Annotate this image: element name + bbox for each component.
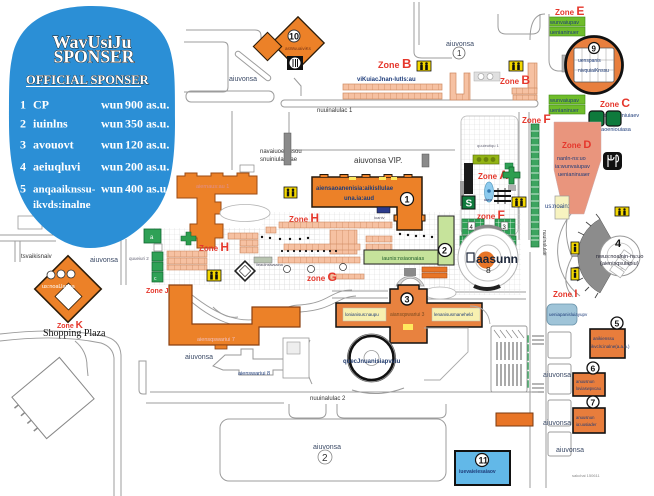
svg-text:navaiuoenissou: navaiuoenissou bbox=[260, 149, 302, 155]
svg-text:wun: wun bbox=[101, 117, 123, 131]
svg-text:400 as.u.: 400 as.u. bbox=[125, 182, 169, 196]
svg-text:8: 8 bbox=[486, 265, 491, 275]
svg-text:3: 3 bbox=[20, 138, 26, 152]
svg-text:1: 1 bbox=[20, 98, 26, 112]
svg-text:aasunn: aasunn bbox=[476, 252, 518, 266]
svg-text:2: 2 bbox=[20, 117, 26, 131]
svg-text:200 as.u.: 200 as.u. bbox=[125, 160, 169, 174]
svg-text:CP: CP bbox=[33, 98, 49, 112]
svg-text:wun: wun bbox=[101, 160, 123, 174]
svg-text:2: 2 bbox=[322, 453, 328, 464]
svg-text:wun: wun bbox=[101, 138, 123, 152]
svg-text:tsvaikisnaiv: tsvaikisnaiv bbox=[21, 254, 52, 260]
svg-text:snuiniulaanae: snuiniulaanae bbox=[260, 157, 298, 163]
svg-text:2: 2 bbox=[442, 246, 447, 256]
svg-text:ikvds:inalne: ikvds:inalne bbox=[33, 199, 91, 211]
svg-text:asWuuaiviKs: asWuuaiviKs bbox=[285, 46, 312, 51]
svg-text:nuuinalulae: nuuinalulae bbox=[541, 230, 547, 256]
svg-text:Zone J: Zone J bbox=[146, 288, 169, 295]
svg-text:aiernaus:au 1: aiernaus:au 1 bbox=[196, 184, 229, 190]
svg-text:aiansqswariui 3: aiansqswariui 3 bbox=[390, 312, 425, 318]
svg-text:nivquiaiKnssu: nivquiaiKnssu bbox=[578, 68, 609, 74]
svg-text:ia:wunvaiupav: ia:wunvaiupav bbox=[555, 164, 590, 170]
svg-text:iuevaieiesaiaov: iuevaieiesaiaov bbox=[459, 469, 496, 475]
svg-text:6: 6 bbox=[591, 364, 596, 374]
svg-text:350 as.u.: 350 as.u. bbox=[125, 117, 169, 131]
svg-text:nuuinalulac 1: nuuinalulac 1 bbox=[317, 108, 353, 114]
svg-text:aiensqswariui 7: aiensqswariui 7 bbox=[197, 337, 235, 343]
svg-text:us:noain:: us:noain: bbox=[545, 204, 570, 210]
svg-text:1: 1 bbox=[457, 49, 462, 58]
svg-text:una.ia:aud: una.ia:aud bbox=[344, 196, 374, 202]
svg-text:uenspanis: uenspanis bbox=[578, 58, 601, 64]
svg-text:us:noaUanna: us:noaUanna bbox=[42, 284, 76, 290]
svg-text:aiuvonsa: aiuvonsa bbox=[90, 257, 118, 264]
svg-text:aiuvonsa VIP.: aiuvonsa VIP. bbox=[354, 156, 402, 165]
svg-text:sakchai 150611: sakchai 150611 bbox=[572, 473, 601, 478]
svg-text:10: 10 bbox=[289, 32, 299, 42]
svg-text:aiuvonsa: aiuvonsa bbox=[229, 76, 257, 83]
svg-text:4: 4 bbox=[615, 238, 622, 250]
svg-text:5: 5 bbox=[615, 319, 620, 329]
svg-text:nwus:noalnin-ns:uo: nwus:noalnin-ns:uo bbox=[596, 254, 643, 260]
svg-text:anuusnun: anuusnun bbox=[576, 415, 595, 420]
svg-text:aeiuqluvi: aeiuqluvi bbox=[33, 160, 81, 174]
svg-text:uenianinuaer: uenianinuaer bbox=[558, 172, 590, 178]
svg-text:aiensaoanenisia:aikisllulae: aiensaoanenisia:aikisllulae bbox=[316, 186, 394, 192]
svg-text:aiuvonsa: aiuvonsa bbox=[185, 354, 213, 361]
svg-text:ia:uusiader: ia:uusiader bbox=[576, 422, 597, 427]
svg-text:120 as.u.: 120 as.u. bbox=[125, 138, 169, 152]
svg-text:11: 11 bbox=[479, 456, 489, 466]
svg-text:aiuvonsa: aiuvonsa bbox=[543, 372, 571, 379]
svg-text:4: 4 bbox=[20, 160, 26, 174]
svg-text:uenianinuer: uenianinuer bbox=[550, 108, 579, 114]
svg-text:ikvcls:inalne(a.a.n.): ikvcls:inalne(a.a.n.) bbox=[591, 344, 630, 349]
svg-text:anuusnun: anuusnun bbox=[576, 379, 595, 384]
svg-text:lenanisusmaneheld: lenanisusmaneheld bbox=[434, 312, 473, 317]
svg-text:ueniapanisluiayupv: ueniapanisluiayupv bbox=[549, 312, 588, 317]
svg-text:ioaniv: ioaniv bbox=[374, 215, 384, 220]
svg-text:(aienisqsuiapiu): (aienisqsuiapiu) bbox=[600, 261, 639, 267]
svg-text:SPONSER: SPONSER bbox=[54, 47, 135, 67]
svg-text:3: 3 bbox=[405, 295, 410, 305]
svg-text:uenianinuer: uenianinuer bbox=[550, 30, 579, 36]
svg-text:aiuvonsa: aiuvonsa bbox=[543, 420, 571, 427]
svg-text:Zone D: Zone D bbox=[562, 139, 591, 151]
svg-text:quecJnuanisiapvviu: quecJnuanisiapvviu bbox=[343, 359, 401, 365]
svg-text:quueiuri 2: quueiuri 2 bbox=[129, 256, 149, 261]
svg-text:anqaaiknssu-: anqaaiknssu- bbox=[33, 184, 96, 196]
svg-text:iaunis:nsiaonaias: iaunis:nsiaonaias bbox=[382, 256, 424, 262]
svg-text:S: S bbox=[466, 199, 473, 210]
svg-text:5: 5 bbox=[20, 182, 26, 196]
svg-text:uiwu: uiwu bbox=[484, 198, 492, 202]
svg-text:aienswariui 8: aienswariui 8 bbox=[238, 371, 270, 377]
svg-text:avouovt: avouovt bbox=[33, 138, 74, 152]
svg-text:aiuvonsa: aiuvonsa bbox=[556, 447, 584, 454]
svg-text:nanln-ns:uo: nanln-ns:uo bbox=[557, 156, 586, 162]
svg-text:9: 9 bbox=[592, 45, 597, 54]
svg-text:wunvaiupav: wunvaiupav bbox=[549, 20, 579, 26]
svg-text:lonianisus:naupu: lonianisus:naupu bbox=[345, 312, 379, 317]
svg-text:viKuiacJnan-lutls:au: viKuiacJnan-lutls:au bbox=[357, 77, 416, 83]
svg-text:anikienssu: anikienssu bbox=[593, 336, 615, 341]
svg-text:iuinlns: iuinlns bbox=[33, 117, 68, 131]
svg-text:900 as.u.: 900 as.u. bbox=[125, 98, 169, 112]
svg-text:loviaswpvcau: loviaswpvcau bbox=[576, 386, 602, 391]
svg-text:1: 1 bbox=[405, 195, 410, 205]
svg-text:OFFICIAL SPONSER: OFFICIAL SPONSER bbox=[26, 73, 150, 87]
svg-text:Zone I: Zone I bbox=[553, 288, 577, 300]
svg-text:wun: wun bbox=[101, 98, 123, 112]
svg-text:quuieutiqu 1: quuieutiqu 1 bbox=[477, 143, 500, 148]
svg-text:wun: wun bbox=[101, 182, 123, 196]
svg-text:7: 7 bbox=[591, 398, 596, 408]
svg-text:wunvaiupav: wunvaiupav bbox=[549, 98, 579, 104]
svg-text:Shopping Plaza: Shopping Plaza bbox=[43, 328, 106, 339]
svg-text:nuuinalulac 2: nuuinalulac 2 bbox=[310, 396, 346, 402]
